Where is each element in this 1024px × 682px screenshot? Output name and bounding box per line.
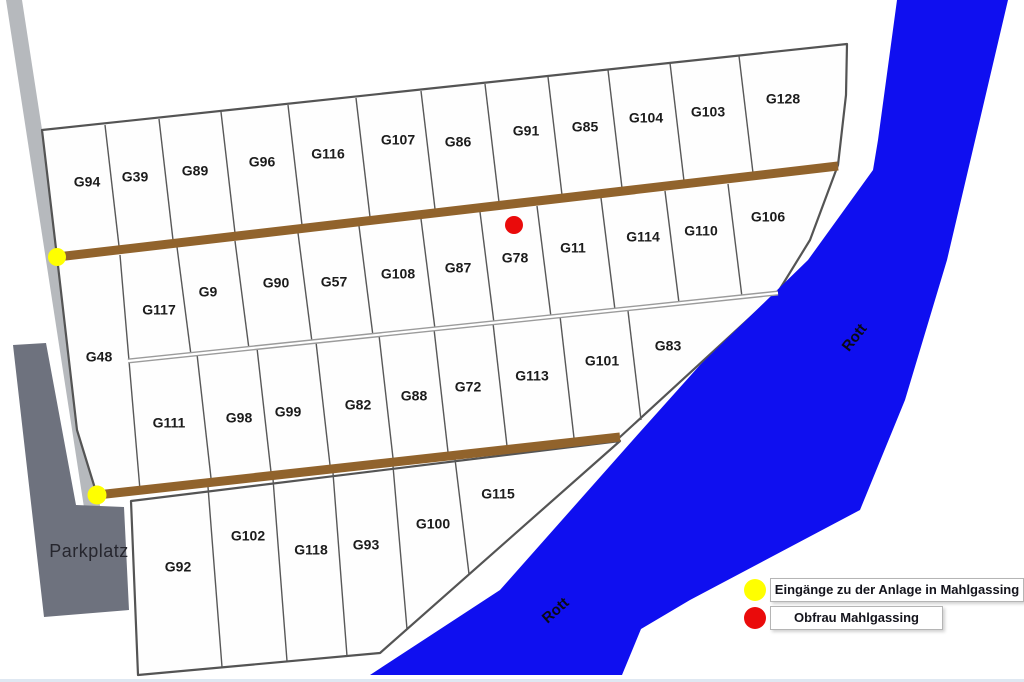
entrance-dot-north xyxy=(48,248,66,266)
plot-label-G72: G72 xyxy=(455,379,482,395)
plot-label-G113: G113 xyxy=(515,368,549,384)
legend-row-obfrau: Obfrau Mahlgassing xyxy=(744,606,943,630)
plot-label-G88: G88 xyxy=(401,388,428,404)
plot-label-G98: G98 xyxy=(226,410,253,426)
plot-label-G116: G116 xyxy=(311,146,345,162)
plot-label-G82: G82 xyxy=(345,397,372,413)
plot-label-G57: G57 xyxy=(321,274,348,290)
plot-label-G48: G48 xyxy=(86,349,113,365)
plot-label-G114: G114 xyxy=(626,229,660,245)
plot-label-G83: G83 xyxy=(655,338,682,354)
legend-entrances-label: Eingänge zu der Anlage in Mahlgassing xyxy=(770,578,1024,602)
entrance-dot-south xyxy=(88,486,107,505)
plot-label-G86: G86 xyxy=(445,134,472,150)
plot-label-G111: G111 xyxy=(153,415,186,431)
plot-label-G107: G107 xyxy=(381,132,415,148)
plot-label-G90: G90 xyxy=(263,275,290,291)
plot-label-G103: G103 xyxy=(691,104,725,120)
legend-obfrau-label: Obfrau Mahlgassing xyxy=(770,606,943,630)
plot-label-G91: G91 xyxy=(513,123,540,139)
allotment-site-map: G94G39G89G96G116G107G86G91G85G104G103G12… xyxy=(0,0,1024,682)
entrance-legend-dot-icon xyxy=(744,579,766,601)
plot-label-G100: G100 xyxy=(416,516,450,532)
obfrau-legend-dot-icon xyxy=(744,607,766,629)
legend-row-entrances: Eingänge zu der Anlage in Mahlgassing xyxy=(744,578,1024,602)
plot-label-G94: G94 xyxy=(74,174,101,190)
plot-label-G85: G85 xyxy=(572,119,599,135)
plot-label-G89: G89 xyxy=(182,163,209,179)
plot-label-G96: G96 xyxy=(249,154,276,170)
plot-label-G117: G117 xyxy=(142,302,176,318)
plot-label-G106: G106 xyxy=(751,209,785,225)
plot-label-G110: G110 xyxy=(684,223,718,239)
plot-label-G115: G115 xyxy=(481,486,515,502)
plot-label-G102: G102 xyxy=(231,528,265,544)
plot-label-G9: G9 xyxy=(199,284,218,300)
plot-label-G93: G93 xyxy=(353,537,380,553)
parkplatz-label: Parkplatz xyxy=(28,541,150,562)
plot-label-G39: G39 xyxy=(122,169,149,185)
plot-label-G128: G128 xyxy=(766,91,800,107)
plot-label-G108: G108 xyxy=(381,266,415,282)
obfrau-dot xyxy=(505,216,523,234)
plot-label-G11: G11 xyxy=(560,240,586,256)
plot-label-G92: G92 xyxy=(165,559,192,575)
plot-label-G101: G101 xyxy=(585,353,619,369)
plot-label-G87: G87 xyxy=(445,260,472,276)
plot-label-G78: G78 xyxy=(502,250,529,266)
plot-label-G99: G99 xyxy=(275,404,302,420)
plot-label-G118: G118 xyxy=(294,542,328,558)
plot-label-G104: G104 xyxy=(629,110,663,126)
